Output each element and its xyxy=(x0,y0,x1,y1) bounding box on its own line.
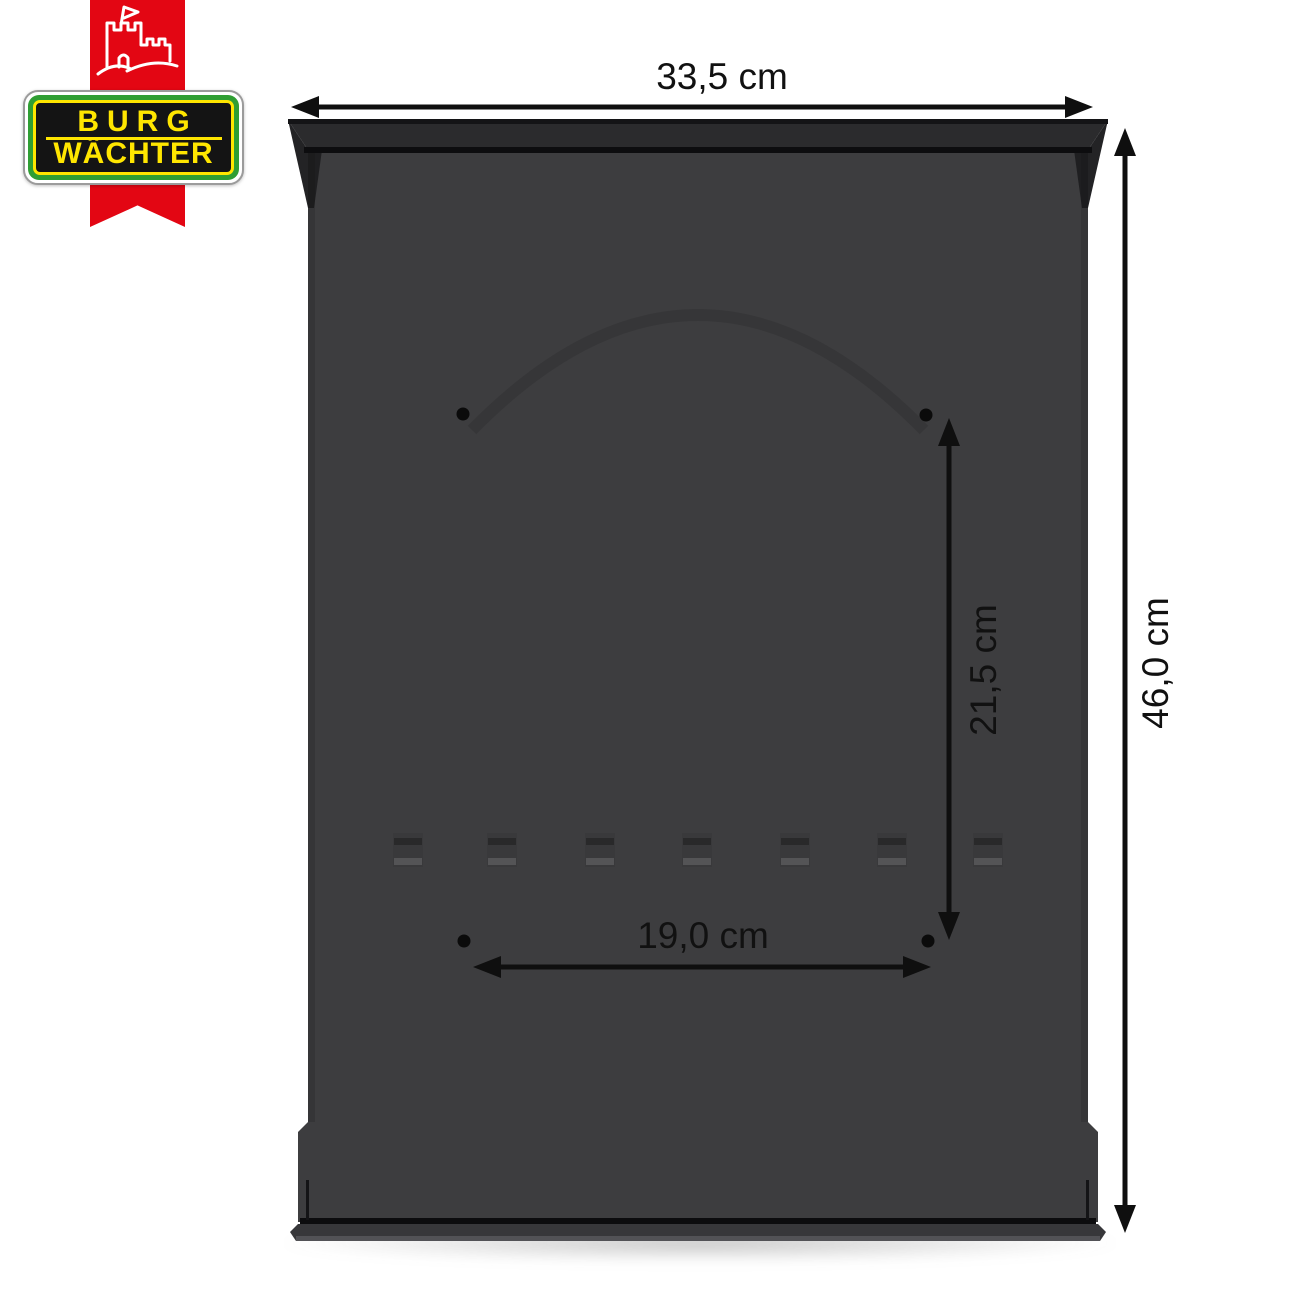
embossed-slot xyxy=(682,833,712,867)
hole-spacing-horizontal-label: 19,0 cm xyxy=(637,915,769,957)
mailbox-back-panel xyxy=(0,0,1300,1300)
mounting-hole-top-right xyxy=(920,409,933,422)
body-right-edge-shade xyxy=(1081,150,1088,1122)
width-dimension-label: 33,5 cm xyxy=(656,56,788,98)
height-dimension-label: 46,0 cm xyxy=(1135,597,1177,729)
embossed-slot xyxy=(585,833,615,867)
embossed-slot xyxy=(877,833,907,867)
top-edge-line xyxy=(288,119,1108,124)
embossed-slot xyxy=(780,833,810,867)
body-left-edge-shade xyxy=(308,150,315,1122)
mounting-hole-bottom-left xyxy=(458,935,471,948)
hole-spacing-vertical-label: 21,5 cm xyxy=(963,604,1005,736)
top-lip-shadow-line xyxy=(304,147,1092,153)
embossed-slot xyxy=(393,833,423,867)
bottom-edge-highlight xyxy=(296,1236,1100,1241)
bottom-right-seam xyxy=(1086,1180,1089,1220)
product-image: BURG WÄCHTER xyxy=(0,0,1300,1300)
bottom-left-seam xyxy=(306,1180,309,1220)
mounting-hole-bottom-right xyxy=(922,935,935,948)
width-dimension-arrow xyxy=(291,96,1093,118)
embossed-slot xyxy=(973,833,1003,867)
top-lip xyxy=(288,120,1108,150)
height-dimension-arrow xyxy=(1114,128,1136,1233)
embossed-slot xyxy=(487,833,517,867)
mounting-hole-top-left xyxy=(457,408,470,421)
bottom-lip-shadow-line xyxy=(300,1218,1096,1225)
